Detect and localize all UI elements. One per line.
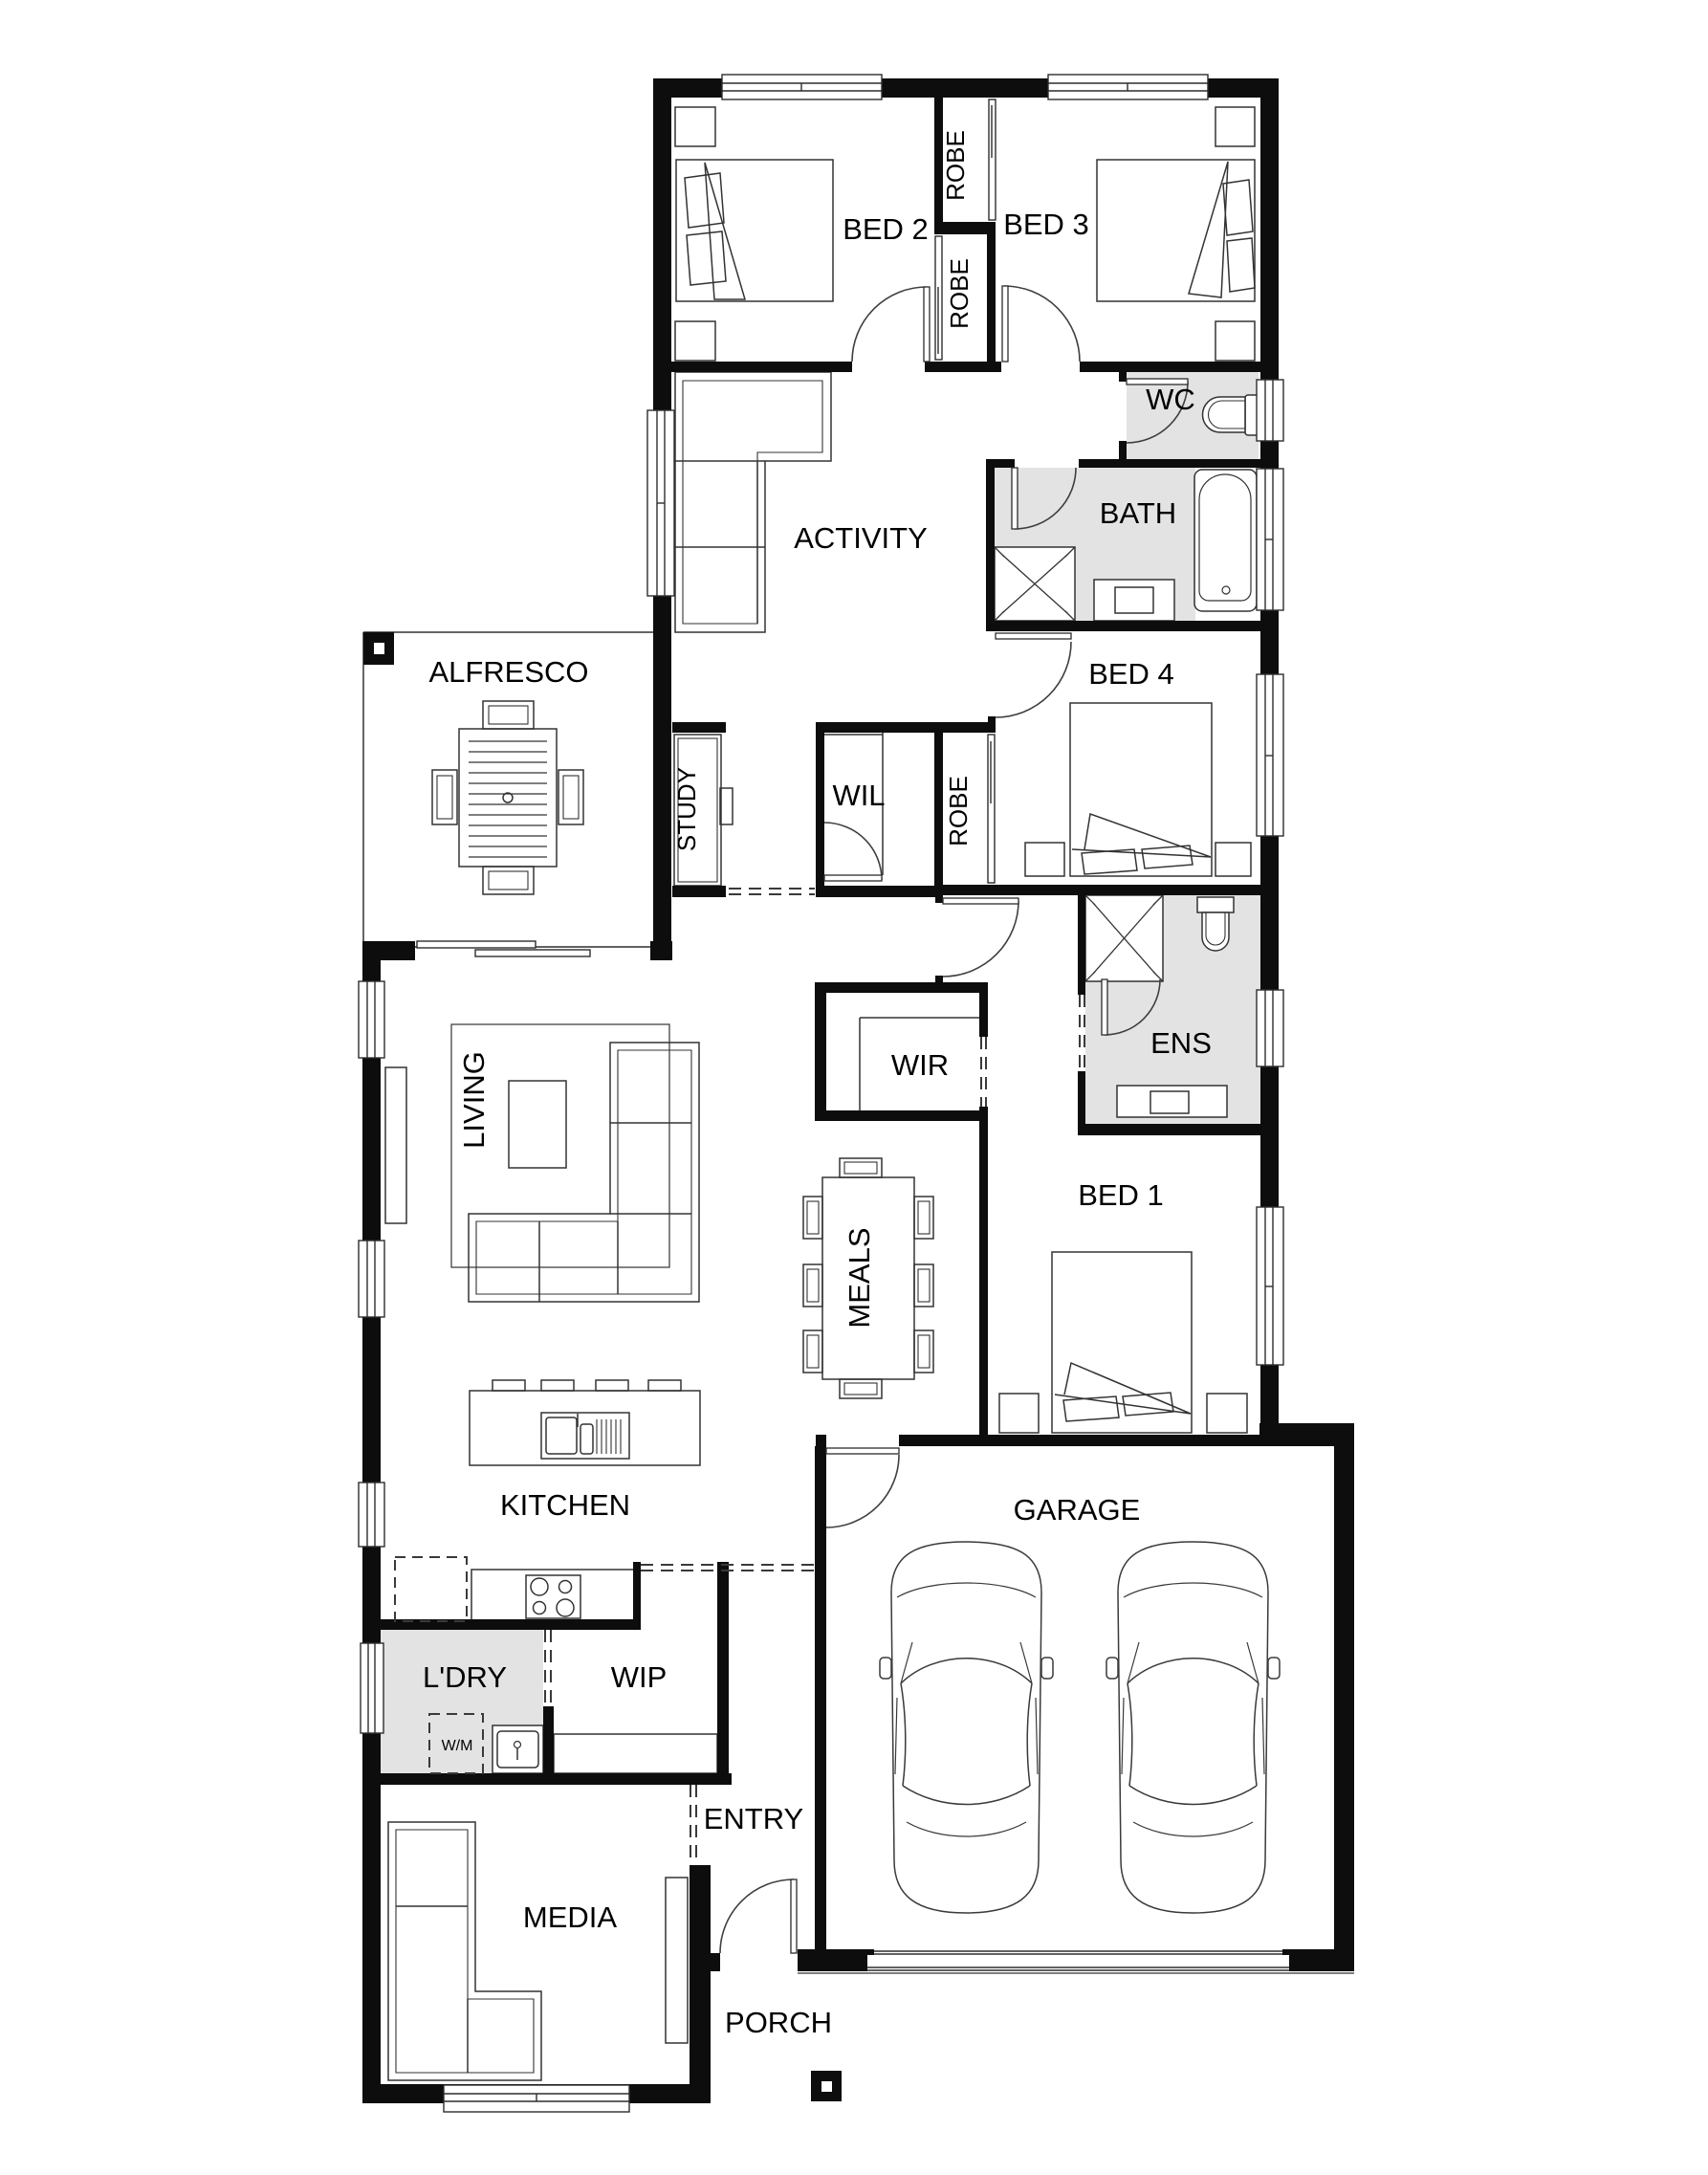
svg-text:BED 2: BED 2 bbox=[843, 212, 929, 246]
svg-text:BED 1: BED 1 bbox=[1078, 1178, 1164, 1212]
svg-text:STUDY: STUDY bbox=[672, 767, 701, 851]
svg-text:PORCH: PORCH bbox=[725, 2006, 832, 2039]
svg-text:L'DRY: L'DRY bbox=[423, 1660, 507, 1694]
svg-text:WC: WC bbox=[1146, 383, 1195, 416]
svg-text:KITCHEN: KITCHEN bbox=[500, 1488, 630, 1522]
svg-text:WIL: WIL bbox=[832, 779, 885, 812]
svg-text:MEDIA: MEDIA bbox=[523, 1900, 618, 1934]
svg-text:BED 4: BED 4 bbox=[1088, 657, 1174, 691]
svg-text:GARAGE: GARAGE bbox=[1014, 1493, 1141, 1527]
svg-text:ENTRY: ENTRY bbox=[704, 1802, 804, 1835]
svg-text:BED 3: BED 3 bbox=[1003, 208, 1089, 241]
svg-text:ROBE: ROBE bbox=[945, 258, 974, 329]
svg-text:ALFRESCO: ALFRESCO bbox=[428, 655, 588, 689]
svg-text:ROBE: ROBE bbox=[944, 776, 973, 846]
svg-text:W/M: W/M bbox=[442, 1738, 473, 1754]
svg-text:WIR: WIR bbox=[891, 1048, 949, 1082]
svg-text:ENS: ENS bbox=[1150, 1026, 1212, 1060]
svg-text:WIP: WIP bbox=[611, 1660, 668, 1694]
svg-text:LIVING: LIVING bbox=[457, 1051, 491, 1149]
svg-text:MEALS: MEALS bbox=[843, 1227, 876, 1328]
svg-text:ROBE: ROBE bbox=[941, 130, 970, 201]
svg-text:ACTIVITY: ACTIVITY bbox=[794, 521, 928, 555]
svg-text:BATH: BATH bbox=[1100, 496, 1176, 530]
